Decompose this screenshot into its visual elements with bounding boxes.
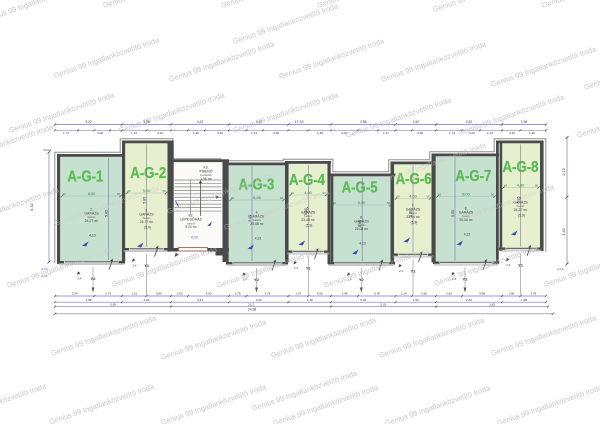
svg-text:3,02: 3,02	[97, 131, 103, 135]
svg-text:17,33: 17,33	[295, 120, 304, 124]
svg-text:40: 40	[62, 192, 66, 196]
svg-text:A-G-5: A-G-5	[342, 180, 378, 197]
svg-text:1,31: 1,31	[131, 292, 137, 296]
svg-text:5,85: 5,85	[104, 210, 108, 217]
svg-text:1,48: 1,48	[317, 131, 323, 135]
svg-text:1,13: 1,13	[131, 131, 137, 135]
svg-text:1,90: 1,90	[177, 292, 183, 296]
svg-text:8,00: 8,00	[88, 191, 96, 196]
svg-text:3,89: 3,89	[156, 292, 162, 296]
svg-text:3,90: 3,90	[421, 292, 427, 296]
svg-text:1,48: 1,48	[307, 298, 313, 302]
svg-text:40: 40	[504, 183, 508, 187]
svg-text:1,73: 1,73	[63, 131, 69, 135]
svg-text:4,13: 4,13	[255, 237, 262, 241]
svg-text:50: 50	[162, 189, 166, 193]
svg-text:40: 40	[438, 192, 442, 196]
svg-text:50: 50	[280, 196, 284, 200]
svg-text:3,78: 3,78	[530, 292, 536, 296]
svg-text:3,92: 3,92	[217, 131, 223, 135]
svg-text:A-G-1: A-G-1	[67, 169, 103, 186]
svg-text:23,48 m²: 23,48 m²	[301, 218, 315, 222]
svg-text:3,98: 3,98	[85, 298, 91, 302]
svg-text:1,17: 1,17	[383, 131, 389, 135]
svg-text:3,78: 3,78	[265, 292, 271, 296]
svg-text:2,62: 2,62	[466, 298, 472, 302]
svg-text:4,13: 4,13	[359, 242, 366, 246]
svg-text:4,22: 4,22	[197, 120, 204, 124]
svg-text:50: 50	[387, 201, 391, 205]
svg-text:4,60: 4,60	[517, 182, 525, 187]
svg-text:3,99: 3,99	[110, 302, 116, 306]
svg-text:9,21 m²: 9,21 m²	[185, 225, 197, 229]
svg-text:1,90: 1,90	[508, 292, 514, 296]
svg-text:Y1: Y1	[518, 263, 524, 268]
svg-text:1,14: 1,14	[401, 292, 407, 296]
svg-text:6,00: 6,00	[462, 191, 470, 196]
svg-text:50: 50	[426, 194, 430, 198]
svg-text:40: 40	[396, 194, 400, 198]
svg-text:3,98: 3,98	[479, 292, 485, 296]
svg-text:1,96 m²: 1,96 m²	[200, 177, 212, 181]
svg-text:2,15: 2,15	[562, 168, 566, 175]
svg-text:3,78: 3,78	[374, 292, 380, 296]
svg-text:3,40: 3,40	[562, 228, 566, 235]
svg-text:40: 40	[333, 201, 337, 205]
svg-text:Y2: Y2	[254, 277, 260, 282]
svg-text:2,4: 2,4	[133, 264, 137, 268]
svg-text:2,79: 2,79	[105, 292, 111, 296]
svg-text:Y2: Y2	[91, 276, 97, 281]
svg-text:4,13: 4,13	[89, 234, 96, 238]
svg-text:-0,10: -0,10	[557, 267, 564, 271]
svg-text:3,90: 3,90	[317, 292, 323, 296]
svg-text:3,94: 3,94	[72, 292, 78, 296]
svg-text:6,65: 6,65	[253, 195, 261, 200]
svg-text:1,52: 1,52	[413, 298, 419, 302]
svg-text:40: 40	[291, 191, 295, 195]
svg-text:3,98: 3,98	[273, 131, 279, 135]
svg-text:5,01: 5,01	[380, 302, 386, 306]
svg-text:50: 50	[491, 192, 495, 196]
svg-text:(5,9): (5,9)	[411, 221, 418, 225]
svg-text:24,38: 24,38	[248, 308, 256, 312]
svg-text:1,73: 1,73	[449, 131, 455, 135]
svg-text:24,27 m²: 24,27 m²	[85, 219, 99, 223]
svg-text:40: 40	[231, 196, 235, 200]
svg-text:2,62: 2,62	[446, 292, 452, 296]
svg-text:1,14: 1,14	[251, 131, 257, 135]
svg-text:2,4: 2,4	[399, 269, 403, 273]
svg-text:4,42: 4,42	[157, 131, 163, 135]
svg-text:1,98: 1,98	[521, 298, 527, 302]
svg-text:1,40: 1,40	[529, 131, 535, 135]
svg-text:2,79: 2,79	[235, 292, 241, 296]
svg-text:1,40: 1,40	[193, 131, 199, 135]
svg-text:2,02: 2,02	[143, 298, 149, 302]
svg-text:4,13: 4,13	[464, 233, 471, 237]
svg-text:4,22: 4,22	[256, 298, 262, 302]
svg-text:1,98: 1,98	[521, 120, 528, 124]
svg-text:4,42: 4,42	[509, 131, 515, 135]
svg-text:A-G-7: A-G-7	[455, 168, 491, 185]
svg-text:3,82: 3,82	[489, 302, 495, 306]
svg-text:(5,9): (5,9)	[144, 226, 151, 230]
svg-text:4,60: 4,60	[409, 193, 417, 198]
svg-text:-0,02: -0,02	[190, 236, 197, 240]
svg-text:1,52: 1,52	[412, 120, 419, 124]
svg-text:4,21: 4,21	[197, 298, 203, 302]
svg-text:(5,9): (5,9)	[518, 214, 525, 218]
svg-text:A-G-4: A-G-4	[289, 172, 325, 189]
svg-text:3,98: 3,98	[417, 131, 423, 135]
svg-text:2,4: 2,4	[78, 277, 82, 281]
svg-text:23,94 m²: 23,94 m²	[406, 215, 420, 219]
svg-text:21,2: 21,2	[248, 302, 254, 306]
svg-text:1,48: 1,48	[342, 292, 348, 296]
svg-text:2,4: 2,4	[507, 263, 511, 267]
svg-text:3,22: 3,22	[85, 120, 92, 124]
svg-text:1,13: 1,13	[487, 131, 493, 135]
svg-text:2,4: 2,4	[294, 266, 298, 270]
svg-text:±0,00: ±0,00	[43, 148, 51, 152]
svg-text:24,08 m²: 24,08 m²	[355, 227, 369, 231]
svg-text:5,32: 5,32	[30, 203, 34, 210]
svg-text:(5,9): (5,9)	[306, 224, 313, 228]
svg-text:A-G-2: A-G-2	[130, 165, 166, 182]
svg-text:24,77 m²: 24,77 m²	[140, 220, 154, 224]
svg-text:24,27 m²: 24,27 m²	[514, 208, 528, 212]
svg-text:1,97: 1,97	[295, 292, 301, 296]
svg-text:5,01: 5,01	[360, 298, 366, 302]
svg-text:Y1: Y1	[411, 269, 417, 274]
svg-text:3,90: 3,90	[206, 292, 212, 296]
svg-text:Y1: Y1	[306, 266, 312, 271]
